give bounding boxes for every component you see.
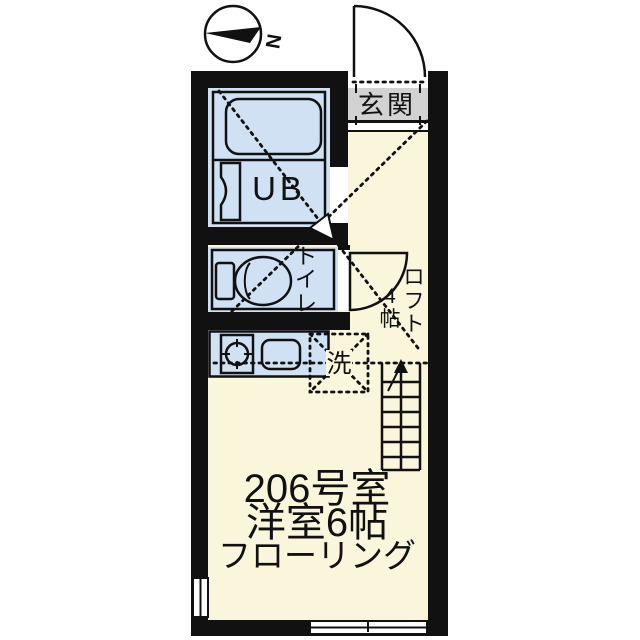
svg-text:帖: 帖 — [380, 308, 401, 331]
wall-top — [191, 71, 348, 88]
ub-door-opening — [330, 167, 348, 223]
genkan-step — [348, 123, 428, 130]
svg-text:レ: レ — [295, 291, 317, 316]
genkan-label: 玄関 — [358, 90, 416, 120]
svg-text:洗: 洗 — [326, 350, 351, 378]
genkan-step-edge — [348, 120, 428, 123]
toilet-label: ト イ レ — [295, 244, 317, 316]
kitchen-counter — [208, 330, 330, 378]
toilet-room — [208, 247, 338, 312]
flooring-label: フローリング — [218, 537, 416, 574]
washer-label: 洗 — [326, 350, 352, 378]
wall-left — [191, 71, 208, 636]
floor-plan: N 玄関 UB ト イ レ ロ フ ト 4 帖 洗 206号室 洋室6帖 フロー… — [0, 0, 640, 640]
wall-ub-genkan — [330, 88, 348, 167]
room-caption: 206号室 洋室6帖 フローリング — [218, 467, 416, 574]
bottom-wall-window — [310, 621, 427, 634]
svg-text:ト: ト — [404, 313, 425, 336]
unit-bath-label: UB — [252, 170, 306, 207]
svg-text:ロ: ロ — [404, 266, 425, 289]
svg-text:イ: イ — [295, 267, 317, 292]
wall-toilet-kitchen — [191, 312, 350, 330]
left-wall-window — [193, 578, 208, 617]
svg-text:ト: ト — [295, 244, 317, 269]
svg-text:4: 4 — [384, 285, 396, 308]
svg-text:フ: フ — [404, 290, 425, 313]
wall-right — [428, 71, 448, 636]
